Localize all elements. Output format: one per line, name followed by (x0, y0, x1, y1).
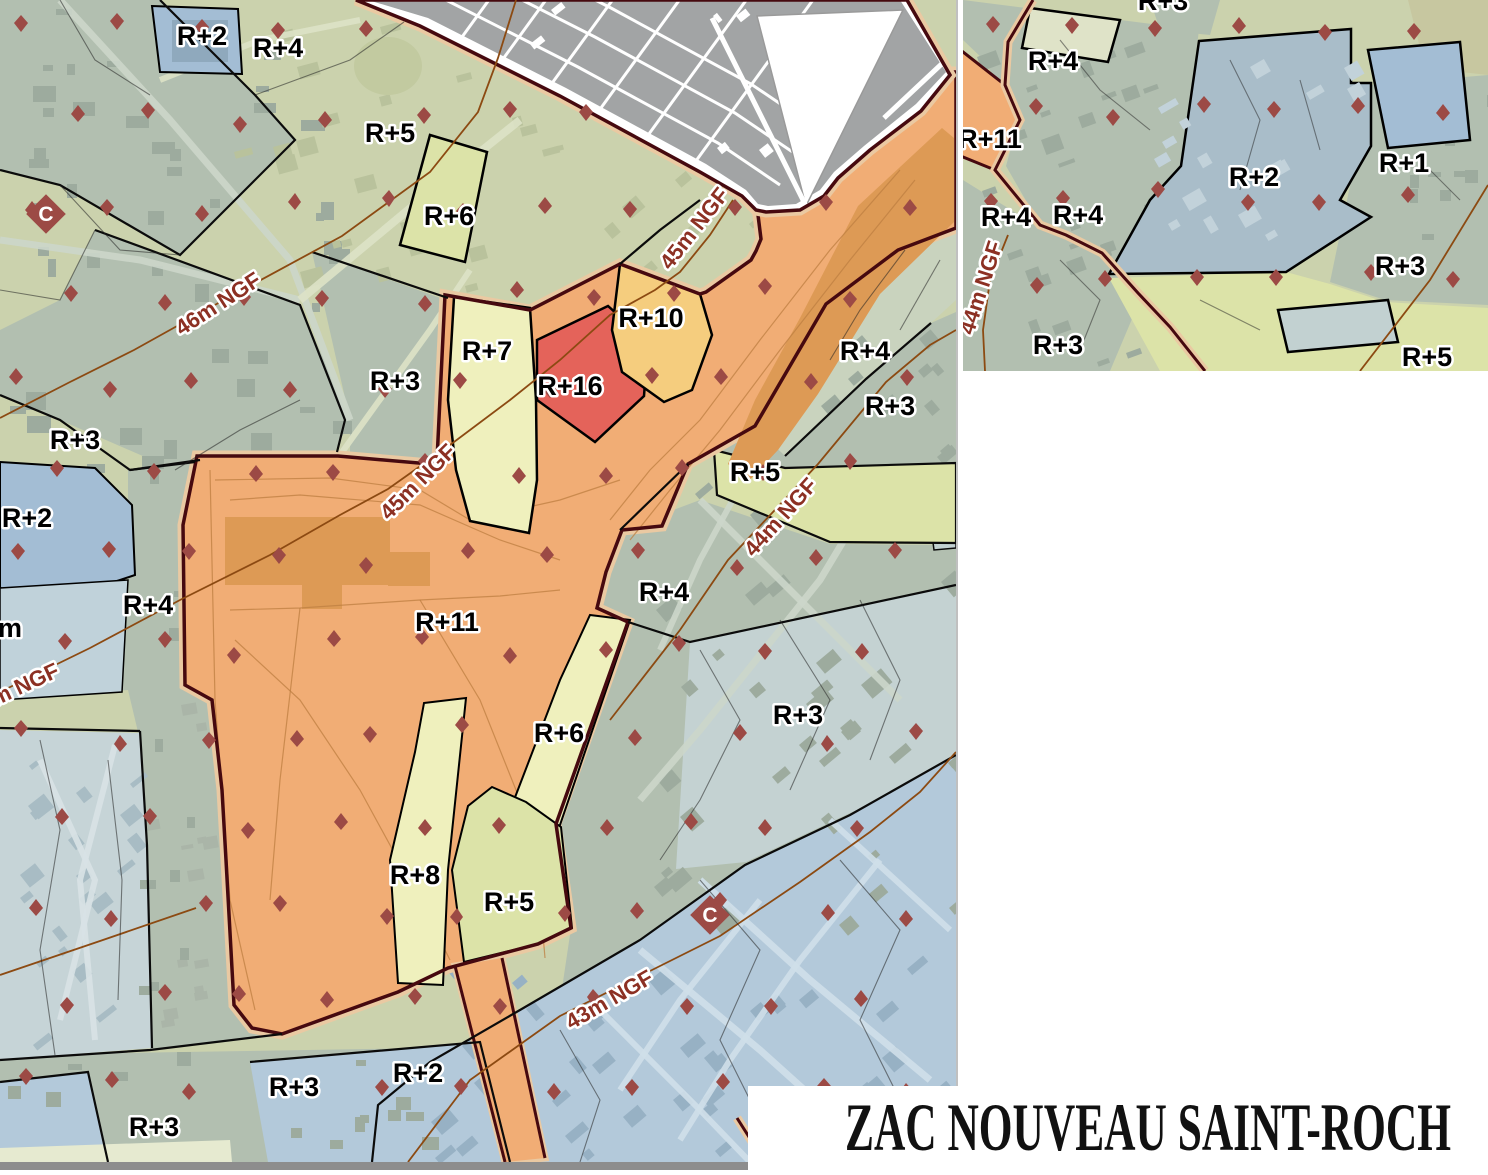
svg-text:R+3: R+3 (865, 391, 915, 421)
svg-text:R+3: R+3 (773, 700, 823, 730)
svg-text:R+7: R+7 (462, 336, 512, 366)
svg-text:R+8: R+8 (390, 860, 440, 890)
svg-text:R+4: R+4 (253, 33, 303, 63)
svg-text:R+2: R+2 (177, 21, 227, 51)
svg-text:R+5: R+5 (484, 887, 534, 917)
svg-text:R+2: R+2 (2, 503, 52, 533)
svg-text:R+6: R+6 (534, 718, 584, 748)
svg-text:R+4: R+4 (123, 590, 173, 620)
svg-text:m: m (0, 613, 22, 643)
svg-text:R+3: R+3 (1375, 251, 1425, 281)
svg-text:R+5: R+5 (730, 457, 780, 487)
svg-text:R+4: R+4 (1053, 200, 1103, 230)
svg-text:R+4: R+4 (1028, 46, 1078, 76)
svg-text:R+1: R+1 (1379, 148, 1429, 178)
svg-text:R+2: R+2 (393, 1058, 443, 1088)
svg-text:R+4: R+4 (639, 577, 689, 607)
svg-text:R+3: R+3 (1138, 0, 1188, 16)
svg-text:R+4: R+4 (981, 202, 1031, 232)
svg-text:R+3: R+3 (269, 1072, 319, 1102)
svg-text:R+11: R+11 (415, 607, 479, 637)
svg-text:R+2: R+2 (1229, 162, 1279, 192)
svg-text:R+10: R+10 (618, 303, 683, 333)
svg-text:R+5: R+5 (365, 118, 415, 148)
svg-text:ZAC NOUVEAU SAINT-ROCH: ZAC NOUVEAU SAINT-ROCH (845, 1089, 1451, 1165)
svg-text:R+3: R+3 (50, 425, 100, 455)
svg-text:R+4: R+4 (840, 336, 890, 366)
svg-text:R+3: R+3 (1033, 330, 1083, 360)
svg-text:R+6: R+6 (424, 201, 474, 231)
svg-text:R+3: R+3 (129, 1112, 179, 1142)
svg-text:R+3: R+3 (370, 366, 420, 396)
svg-text:R+16: R+16 (537, 371, 602, 401)
svg-text:C: C (702, 904, 717, 927)
svg-text:R+5: R+5 (1402, 342, 1452, 372)
svg-text:R+11: R+11 (958, 124, 1022, 154)
svg-text:C: C (38, 203, 53, 226)
